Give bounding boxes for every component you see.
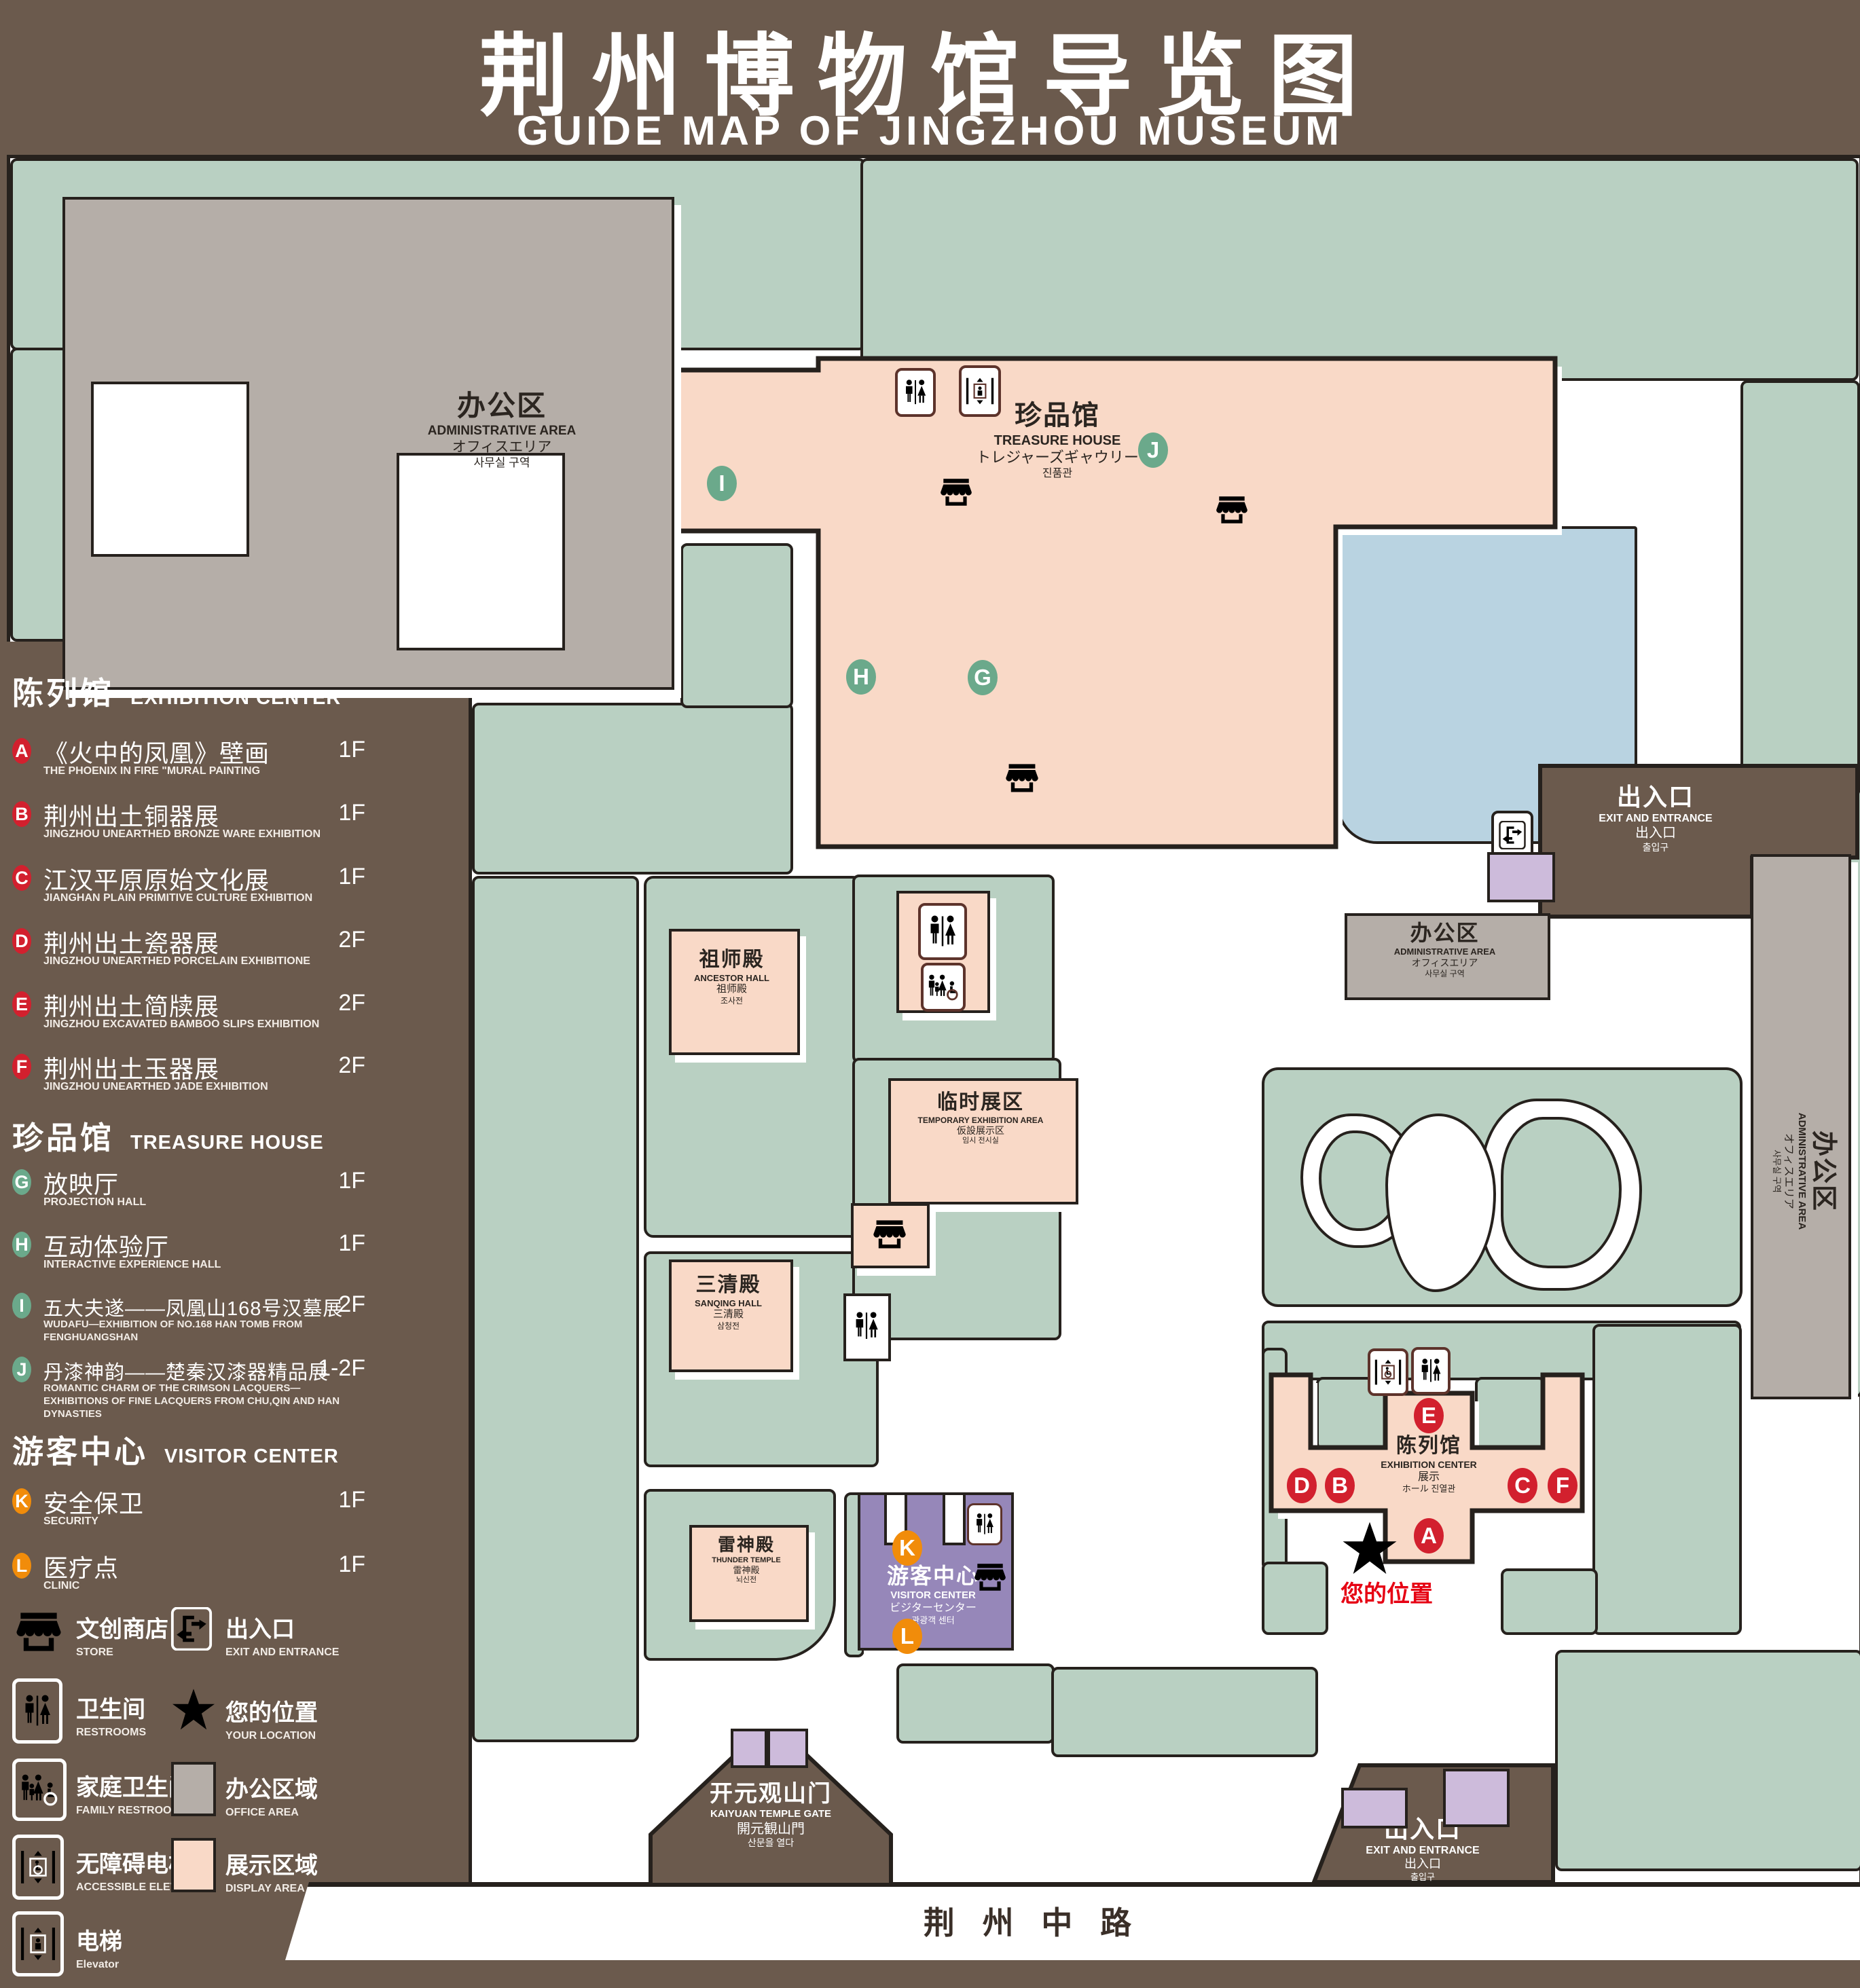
map-badge-l: L xyxy=(892,1619,922,1654)
thunder-temple-building: 雷神殿 THUNDER TEMPLE 雷神殿 뇌신전 xyxy=(689,1525,809,1622)
notch xyxy=(943,1492,966,1545)
garden-island xyxy=(1501,1117,1622,1268)
store-annex xyxy=(851,1203,930,1268)
lawn-area xyxy=(472,876,639,1742)
courtyard xyxy=(397,453,565,650)
restrooms-icon xyxy=(918,903,967,960)
restroom-annex xyxy=(843,1293,891,1361)
legend-item-g: G 放映厅 PROJECTION HALL 1F xyxy=(12,1168,420,1230)
family-restrooms-icon xyxy=(12,1759,67,1821)
legend-item-b: B 荆州出土铜器展 JINGZHOU UNEARTHED BRONZE WARE… xyxy=(12,800,420,862)
store-icon xyxy=(1214,493,1250,528)
lawn-area xyxy=(680,543,793,708)
admin-mid-label: 办公区 ADMINISTRATIVE AREA オフィスエリア 사무실 구역 xyxy=(1347,920,1542,979)
restrooms-icon xyxy=(1411,1347,1451,1395)
map-badge-b: B xyxy=(1325,1468,1355,1503)
legend-item-i: I 五大夫遂——凤凰山168号汉墓展 WUDAFU—EXHIBITION OF … xyxy=(12,1291,420,1354)
exhibition-center-label: 陈列馆 EXHIBITION CENTER 展示 ホール 진열관 xyxy=(1358,1434,1499,1494)
map-badge-a: A xyxy=(1414,1518,1444,1553)
legend-item-d: D 荆州出土瓷器展 JINGZHOU UNEARTHED PORCELAIN E… xyxy=(12,927,420,989)
elevator-icon xyxy=(959,365,1001,417)
lawn-area xyxy=(1262,1348,1288,1570)
legend-item-f: F 荆州出土玉器展 JINGZHOU UNEARTHED JADE EXHIBI… xyxy=(12,1052,420,1115)
admin-nw-label: 办公区 ADMINISTRATIVE AREA オフィスエリア 사무실 구역 xyxy=(397,388,607,471)
your-location-star-icon xyxy=(1341,1521,1398,1578)
entrance-block xyxy=(1341,1788,1408,1828)
legend-display-label: 展示区域 DISPLAY AREA xyxy=(225,1847,318,1895)
admin-building-nw: 办公区 ADMINISTRATIVE AREA オフィスエリア 사무실 구역 xyxy=(62,197,674,690)
legend-item-k: K 安全保卫 SECURITY 1F xyxy=(12,1487,420,1549)
legend-section-visitor: 游客中心VISITOR CENTER xyxy=(12,1427,339,1472)
map-badge-h: H xyxy=(846,659,876,695)
legend-store-label: 文创商店 STORE xyxy=(76,1610,168,1659)
legend-item-c: C 江汉平原原始文化展 JIANGHAN PLAIN PRIMITIVE CUL… xyxy=(12,864,420,926)
entrance-block xyxy=(731,1729,767,1768)
admin-east-label: 办公区 ADMINISTRATIVE AREA オフィスエリア 사무실 구역 xyxy=(1757,1029,1839,1314)
map-badge-f: F xyxy=(1548,1468,1578,1503)
map-badge-d: D xyxy=(1287,1468,1317,1503)
legend-section-exhibition: 陈列馆EXHIBITION CENTER xyxy=(12,669,341,714)
temporary-exhibition-building: 临时展区 TEMPORARY EXHIBITION AREA 仮設展示区 임시 … xyxy=(888,1078,1078,1204)
map-badge-e: E xyxy=(1414,1398,1444,1433)
restrooms-icon xyxy=(895,368,936,417)
lawn-area xyxy=(1592,1324,1742,1635)
accessible-elevator-icon xyxy=(1368,1348,1408,1396)
lawn-area xyxy=(1501,1568,1598,1635)
legend-office-label: 办公区域 OFFICE AREA xyxy=(225,1771,318,1819)
family-restrooms-icon xyxy=(921,963,966,1012)
office-area-swatch xyxy=(171,1762,216,1816)
your-location-label: 您的位置 xyxy=(1319,1575,1455,1608)
legend-elevator-label: 电梯 Elevator xyxy=(76,1923,122,1971)
entrance-block xyxy=(1443,1769,1510,1827)
entrance-block xyxy=(767,1729,808,1768)
elevator-icon xyxy=(12,1911,64,1976)
legend-section-treasure: 珍品馆TREASURE HOUSE xyxy=(12,1113,324,1158)
legend-item-l: L 医疗点 CLINIC 1F xyxy=(12,1551,420,1614)
lawn-area xyxy=(860,158,1859,381)
lawn-area xyxy=(1051,1667,1318,1757)
restrooms-icon xyxy=(967,1503,1002,1545)
kaiyuan-gate-label: 开元观山门 KAIYUAN TEMPLE GATE 開元観山門 산문을 열다 xyxy=(652,1780,890,1849)
entrance-block xyxy=(1487,852,1555,902)
display-area-swatch xyxy=(171,1838,216,1892)
exit-ne-label: 出入口 EXIT AND ENTRANCE 出入口 출입구 xyxy=(1540,782,1771,853)
lawn-area xyxy=(896,1663,1055,1744)
legend-location-label: 您的位置 YOUR LOCATION xyxy=(225,1694,318,1742)
exit-icon xyxy=(170,1604,213,1654)
map-badge-k: K xyxy=(892,1530,922,1566)
accessible-elevator-icon xyxy=(12,1835,64,1900)
sanqing-hall-building: 三清殿 SANQING HALL 三清殿 삼청전 xyxy=(669,1259,793,1372)
store-icon xyxy=(12,1608,65,1658)
legend-item-e: E 荆州出土简牍展 JINGZHOU EXCAVATED BAMBOO SLIP… xyxy=(12,990,420,1052)
courtyard xyxy=(91,382,249,557)
map-badge-g: G xyxy=(968,660,998,695)
admin-building-mid: 办公区 ADMINISTRATIVE AREA オフィスエリア 사무실 구역 xyxy=(1345,913,1550,1000)
map-badge-c: C xyxy=(1508,1468,1537,1503)
lawn-area xyxy=(1740,380,1860,771)
lawn-area xyxy=(1555,1650,1860,1871)
museum-guide-map-poster: 荆州博物馆导览图 GUIDE MAP OF JINGZHOU MUSEUM xyxy=(0,0,1860,1988)
map-badge-i: I xyxy=(707,466,737,501)
legend-restrooms-label: 卫生间 RESTROOMS xyxy=(76,1691,146,1739)
visitor-center-building: 游客中心 VISITOR CENTER ビジターセンター 관광객 센터 xyxy=(858,1492,1014,1651)
map-badge-j: J xyxy=(1138,432,1168,468)
store-icon xyxy=(972,1560,1008,1596)
restrooms-icon xyxy=(12,1678,62,1744)
store-icon xyxy=(938,475,974,511)
legend-item-a: A 《火中的凤凰》壁画 THE PHOENIX IN FIRE "MURAL P… xyxy=(12,737,420,799)
legend-item-j: J 丹漆神韵——楚秦汉漆器精品展 ROMANTIC CHARM OF THE C… xyxy=(12,1355,420,1418)
road-label: 荆 州 中 路 xyxy=(849,1898,1216,1943)
lawn-area xyxy=(472,703,793,875)
legend-exit-label: 出入口 EXIT AND ENTRANCE xyxy=(225,1610,339,1659)
store-icon xyxy=(1004,760,1040,797)
page-subtitle: GUIDE MAP OF JINGZHOU MUSEUM xyxy=(0,107,1860,154)
legend-item-h: H 互动体验厅 INTERACTIVE EXPERIENCE HALL 1F xyxy=(12,1230,420,1293)
your-location-icon xyxy=(171,1688,216,1733)
ancestor-hall-building: 祖师殿 ANCESTOR HALL 祖师殿 조사전 xyxy=(669,929,800,1055)
